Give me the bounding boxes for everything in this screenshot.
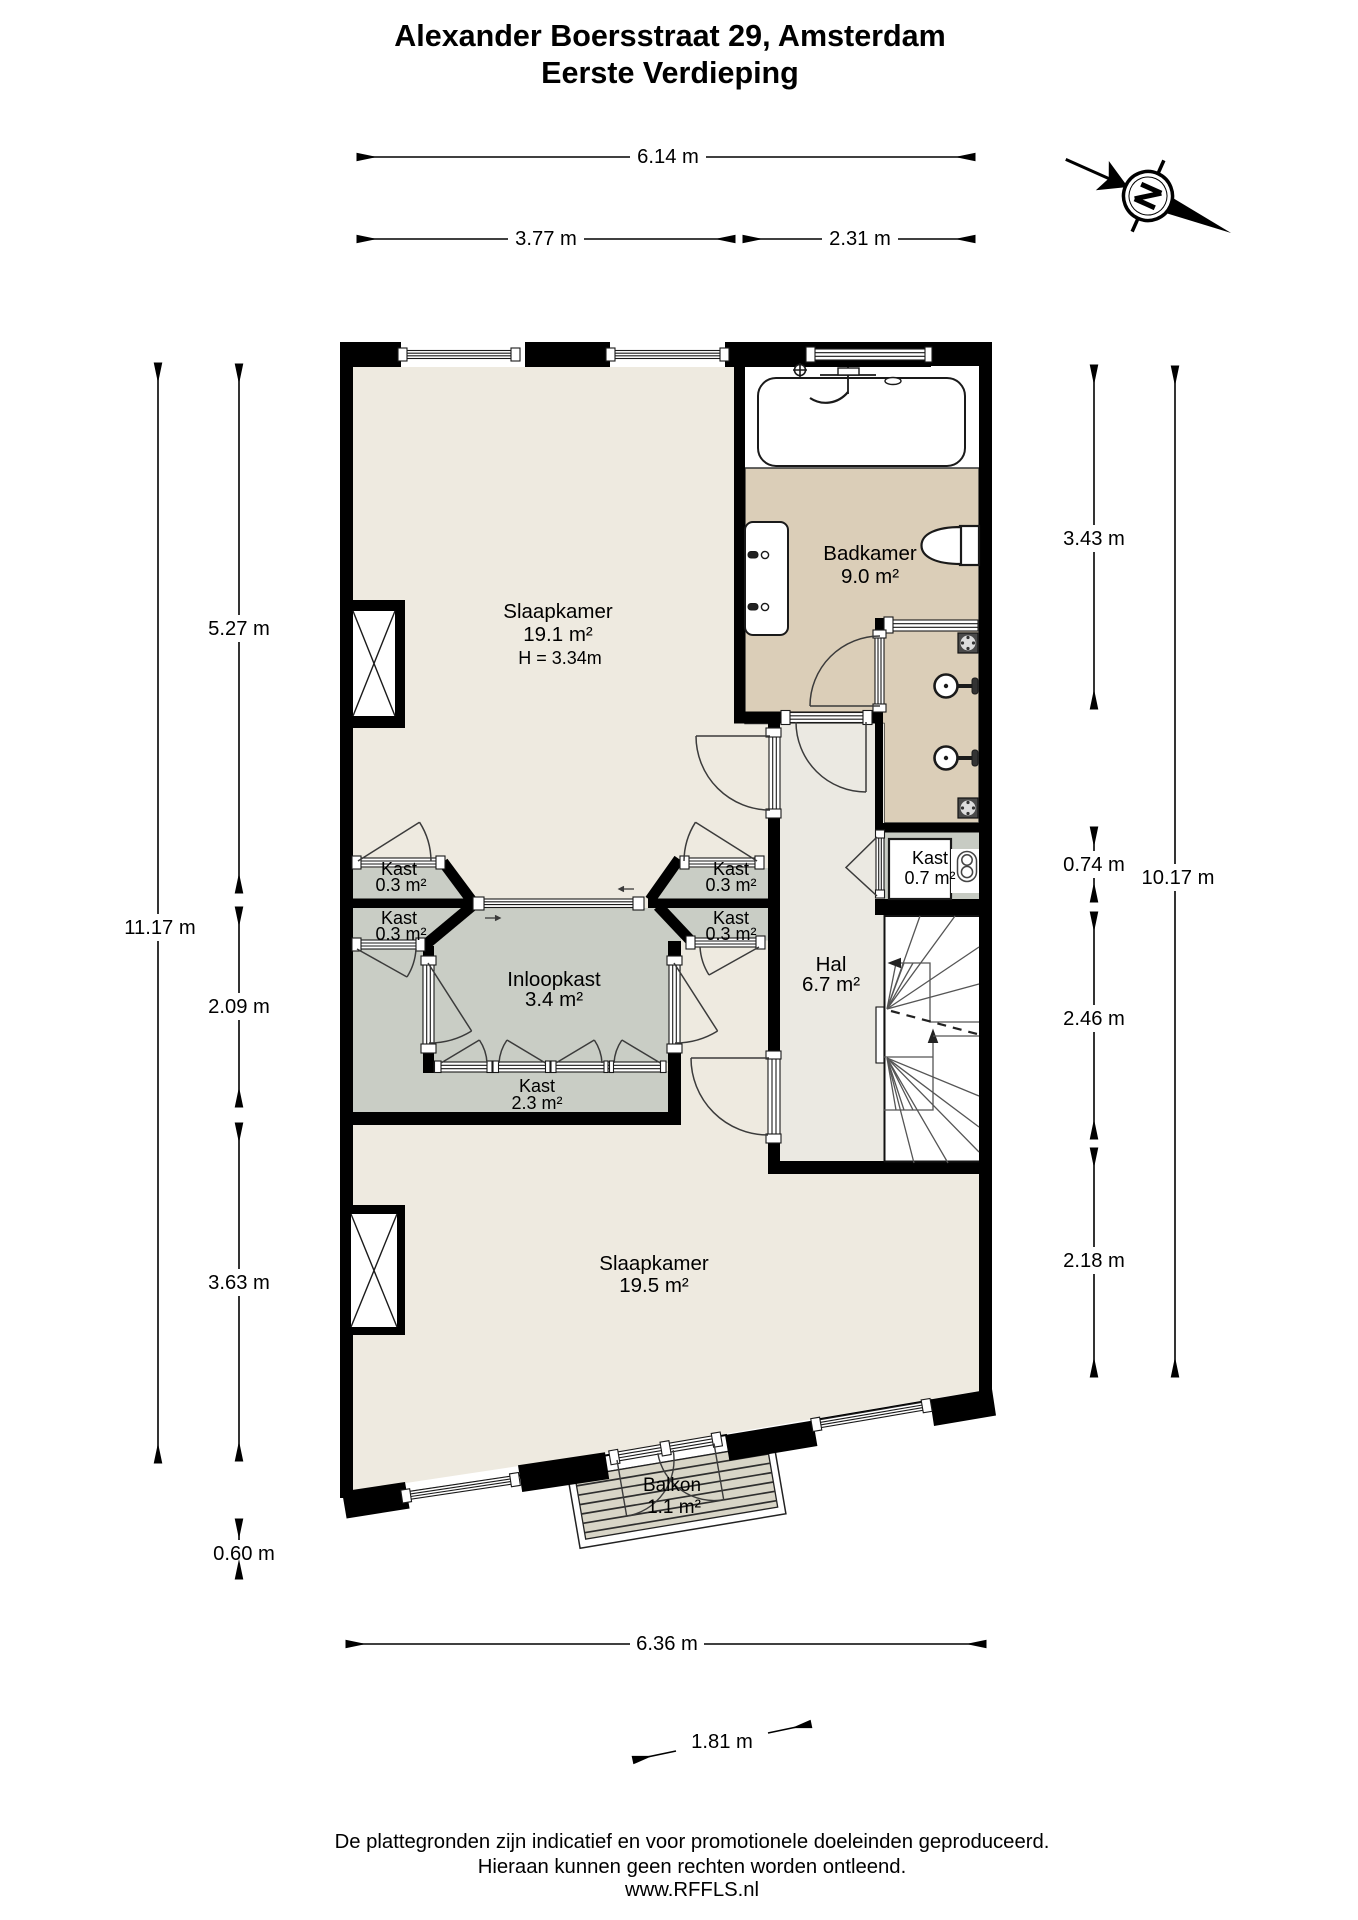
svg-text:19.1 m²: 19.1 m² [523,623,593,646]
svg-text:5.27 m: 5.27 m [208,618,270,640]
svg-text:2.31 m: 2.31 m [829,228,891,250]
svg-text:0.3 m²: 0.3 m² [705,924,756,944]
svg-text:3.43 m: 3.43 m [1063,528,1125,550]
svg-text:11.17 m: 11.17 m [124,917,195,939]
svg-text:9.0 m²: 9.0 m² [841,565,899,588]
svg-text:Balkon: Balkon [643,1475,701,1496]
svg-text:6.14 m: 6.14 m [637,146,699,168]
svg-text:19.5 m²: 19.5 m² [619,1274,689,1297]
svg-text:0.3 m²: 0.3 m² [375,924,426,944]
svg-text:0.74 m: 0.74 m [1063,854,1125,876]
svg-text:3.63 m: 3.63 m [208,1272,270,1294]
svg-text:1.81 m: 1.81 m [691,1731,753,1753]
svg-text:1.1 m²: 1.1 m² [647,1497,701,1518]
svg-text:www.RFFLS.nl: www.RFFLS.nl [624,1879,759,1901]
svg-text:Kast: Kast [912,848,948,868]
svg-text:3.4 m²: 3.4 m² [525,988,583,1011]
svg-text:2.09 m: 2.09 m [208,996,270,1018]
svg-text:Eerste Verdieping: Eerste Verdieping [541,56,799,90]
svg-text:2.3 m²: 2.3 m² [511,1093,562,1113]
svg-text:10.17 m: 10.17 m [1142,867,1215,889]
svg-text:6.36 m: 6.36 m [636,1633,698,1655]
svg-text:2.46 m: 2.46 m [1063,1008,1125,1030]
svg-text:Slaapkamer: Slaapkamer [599,1252,709,1275]
svg-text:De plattegronden zijn indicati: De plattegronden zijn indicatief en voor… [335,1831,1050,1853]
svg-text:0.3 m²: 0.3 m² [705,875,756,895]
svg-text:Badkamer: Badkamer [823,542,917,565]
svg-text:2.18 m: 2.18 m [1063,1250,1125,1272]
svg-text:6.7 m²: 6.7 m² [802,973,860,996]
svg-text:0.3 m²: 0.3 m² [375,875,426,895]
svg-text:Hieraan kunnen geen rechten wo: Hieraan kunnen geen rechten worden ontle… [478,1856,906,1878]
svg-text:Slaapkamer: Slaapkamer [503,600,613,623]
svg-text:3.77 m: 3.77 m [515,228,577,250]
svg-text:H = 3.34m: H = 3.34m [518,648,602,668]
svg-text:Alexander Boersstraat 29, Amst: Alexander Boersstraat 29, Amsterdam [394,19,946,53]
svg-text:0.60 m: 0.60 m [213,1543,275,1565]
svg-text:0.7 m²: 0.7 m² [904,868,955,888]
